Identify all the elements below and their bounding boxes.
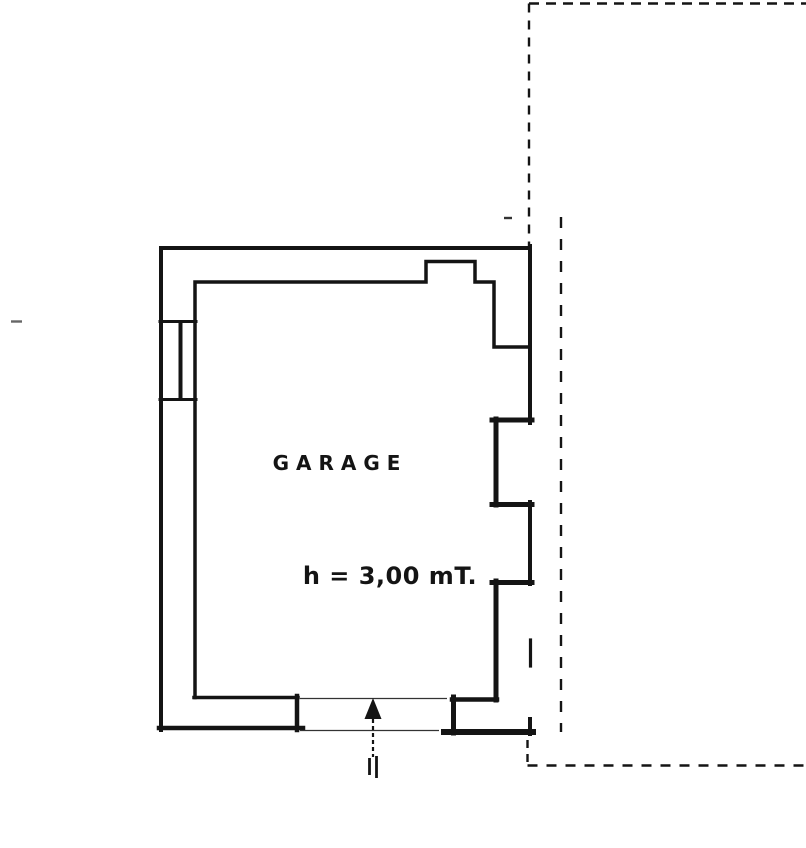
garage-walls — [159, 246, 533, 734]
floor-plan-drawing: GARAGE h = 3,00 mT. — [0, 0, 806, 848]
room-label: GARAGE — [273, 451, 408, 475]
wall-inner-outline — [195, 262, 530, 698]
entrance-arrow-head — [365, 698, 382, 719]
entrance-arrow — [365, 698, 382, 778]
left-wall-window — [160, 322, 196, 400]
right-wall-niche-upper — [492, 419, 532, 505]
stray-marks — [11, 218, 512, 322]
parcel-boundary-dashed — [528, 4, 806, 766]
wall-outer-left-top — [161, 248, 530, 730]
right-wall-niche-lower — [492, 581, 532, 700]
height-label: h = 3,00 mT. — [303, 562, 477, 590]
scanned-floor-plan-page: GARAGE h = 3,00 mT. — [0, 0, 806, 848]
